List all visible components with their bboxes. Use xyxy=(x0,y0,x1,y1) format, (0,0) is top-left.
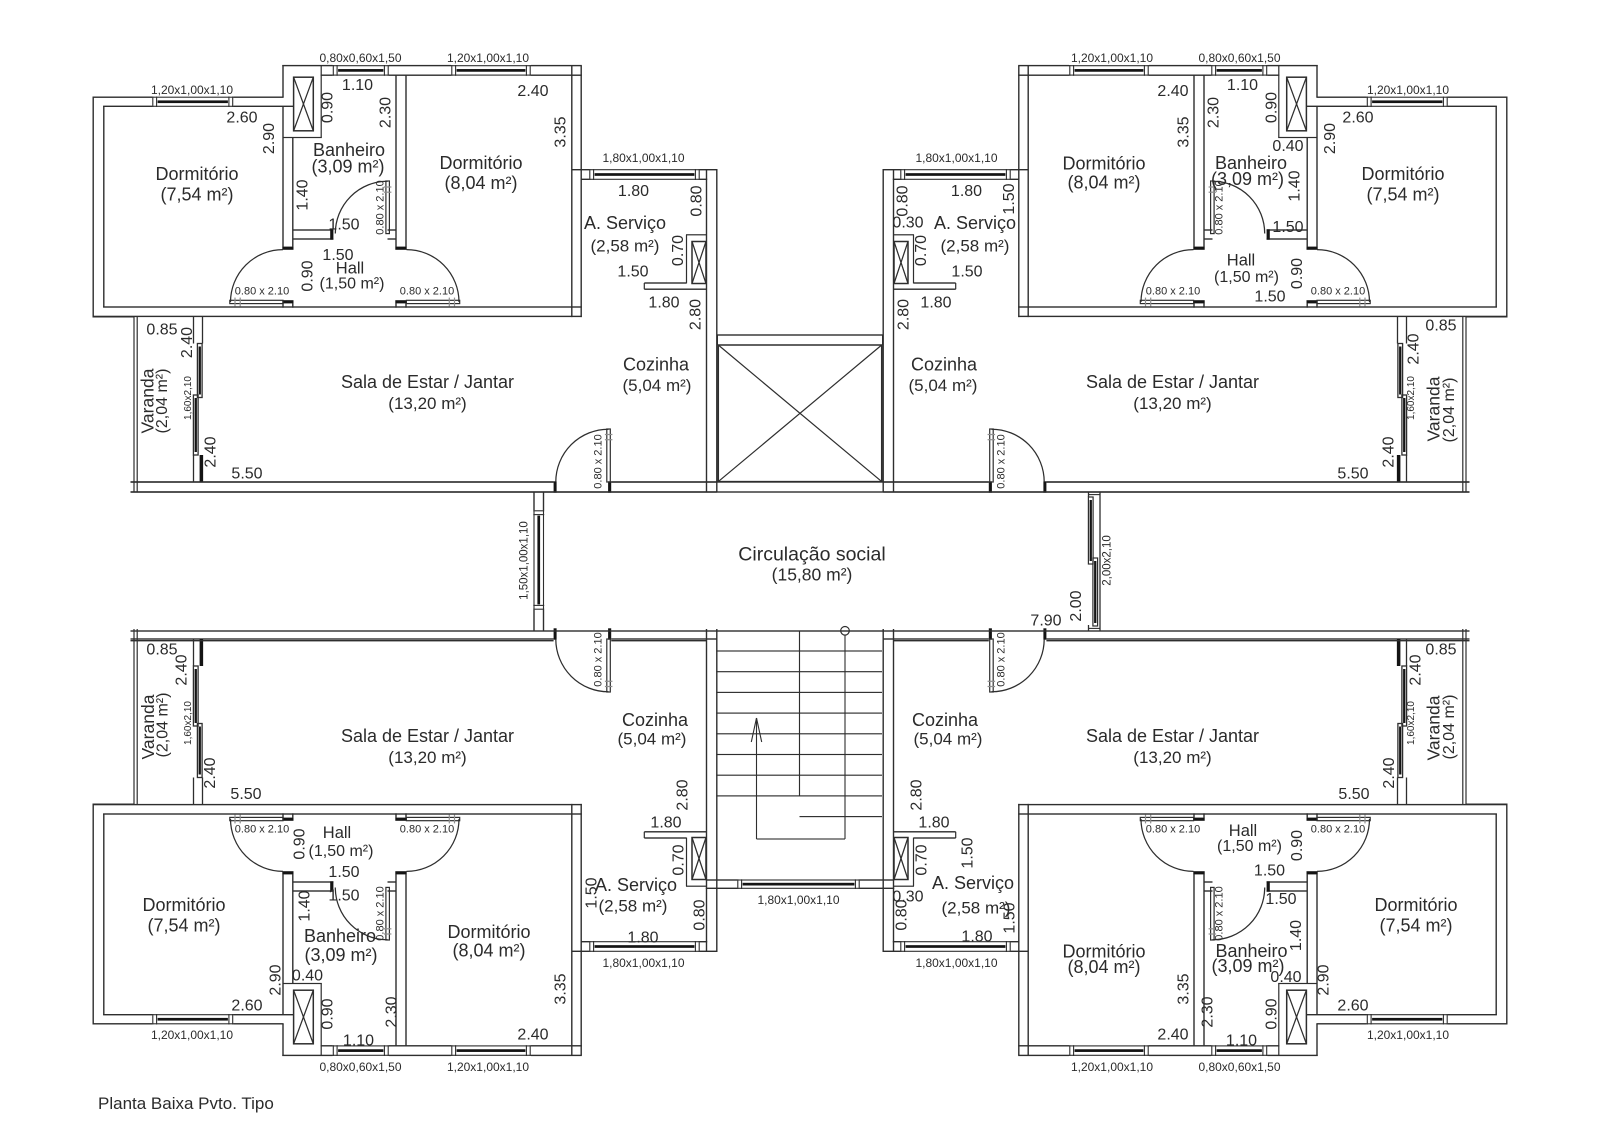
svg-text:0,80x0,60x1,50: 0,80x0,60x1,50 xyxy=(1198,51,1280,65)
svg-text:0.40: 0.40 xyxy=(292,968,323,985)
svg-text:2.90: 2.90 xyxy=(1316,964,1333,995)
svg-text:2.40: 2.40 xyxy=(1157,83,1188,100)
svg-text:1,80x1,00x1,10: 1,80x1,00x1,10 xyxy=(757,893,839,907)
svg-text:1.40: 1.40 xyxy=(1287,170,1304,201)
svg-text:1.50: 1.50 xyxy=(328,888,359,905)
svg-text:1.50: 1.50 xyxy=(322,247,353,264)
svg-text:1,60x2,10: 1,60x2,10 xyxy=(183,376,194,420)
svg-text:0.30: 0.30 xyxy=(892,889,923,906)
svg-text:Hall: Hall xyxy=(1227,252,1255,270)
svg-text:(7,54 m²): (7,54 m²) xyxy=(160,185,233,205)
svg-text:2.40: 2.40 xyxy=(1381,436,1398,467)
svg-text:2.00: 2.00 xyxy=(1068,590,1085,621)
svg-text:(5,04 m²): (5,04 m²) xyxy=(909,376,978,395)
svg-text:7.90: 7.90 xyxy=(1030,613,1061,630)
svg-text:1,60x2,10: 1,60x2,10 xyxy=(1406,701,1417,745)
svg-text:2.40: 2.40 xyxy=(1381,757,1398,788)
svg-text:Dormitório: Dormitório xyxy=(447,922,530,942)
svg-text:Dormitório: Dormitório xyxy=(1361,164,1444,184)
svg-text:1,20x1,00x1,10: 1,20x1,00x1,10 xyxy=(1071,51,1153,65)
svg-text:Cozinha: Cozinha xyxy=(623,355,690,375)
svg-text:3.35: 3.35 xyxy=(553,116,570,147)
svg-text:(5,04 m²): (5,04 m²) xyxy=(623,376,692,395)
svg-text:2.40: 2.40 xyxy=(202,757,219,788)
svg-text:5.50: 5.50 xyxy=(1337,466,1368,483)
svg-text:1,20x1,00x1,10: 1,20x1,00x1,10 xyxy=(1071,1060,1153,1074)
svg-text:2.90: 2.90 xyxy=(1322,123,1339,154)
svg-text:1.50: 1.50 xyxy=(584,877,601,908)
svg-text:(13,20 m²): (13,20 m²) xyxy=(1133,394,1211,413)
svg-text:(5,04 m²): (5,04 m²) xyxy=(618,730,687,749)
svg-text:1.50: 1.50 xyxy=(1002,902,1019,933)
svg-text:Hall: Hall xyxy=(323,824,351,842)
svg-text:0.80 x 2.10: 0.80 x 2.10 xyxy=(235,823,289,835)
svg-text:A. Serviço: A. Serviço xyxy=(934,213,1016,233)
svg-text:(13,20 m²): (13,20 m²) xyxy=(388,394,466,413)
svg-text:Dormitório: Dormitório xyxy=(439,153,522,173)
svg-text:(2,58 m²): (2,58 m²) xyxy=(591,237,660,256)
svg-text:0.30: 0.30 xyxy=(892,215,923,232)
svg-text:Sala de Estar / Jantar: Sala de Estar / Jantar xyxy=(1086,372,1259,392)
svg-text:1.50: 1.50 xyxy=(951,264,982,281)
svg-text:(7,54 m²): (7,54 m²) xyxy=(1379,916,1452,936)
svg-text:(8,04 m²): (8,04 m²) xyxy=(452,941,525,961)
svg-text:1.40: 1.40 xyxy=(295,179,312,210)
svg-text:(3,09 m²): (3,09 m²) xyxy=(304,945,377,965)
svg-text:3.35: 3.35 xyxy=(1176,116,1193,147)
svg-text:0.70: 0.70 xyxy=(671,844,688,875)
svg-text:Dormitório: Dormitório xyxy=(142,895,225,915)
svg-text:0.80: 0.80 xyxy=(895,185,912,216)
svg-text:5.50: 5.50 xyxy=(1338,786,1369,803)
svg-text:1.80: 1.80 xyxy=(650,815,681,832)
svg-text:0.80 x 2.10: 0.80 x 2.10 xyxy=(593,632,605,686)
svg-text:(8,04 m²): (8,04 m²) xyxy=(1067,173,1140,193)
svg-text:Sala de Estar / Jantar: Sala de Estar / Jantar xyxy=(341,372,514,392)
svg-text:1.50: 1.50 xyxy=(1265,891,1296,908)
svg-text:1.80: 1.80 xyxy=(648,295,679,312)
svg-text:1.10: 1.10 xyxy=(1226,1033,1257,1050)
svg-text:(1,50 m²): (1,50 m²) xyxy=(320,276,385,293)
svg-text:1,80x1,00x1,10: 1,80x1,00x1,10 xyxy=(602,956,684,970)
svg-text:3.35: 3.35 xyxy=(1176,973,1193,1004)
svg-text:2.40: 2.40 xyxy=(1157,1027,1188,1044)
svg-text:0.80 x 2.10: 0.80 x 2.10 xyxy=(996,632,1008,686)
svg-text:2.60: 2.60 xyxy=(1342,110,1373,127)
svg-text:(2,04 m²): (2,04 m²) xyxy=(154,369,171,434)
svg-text:1,60x2,10: 1,60x2,10 xyxy=(183,701,194,745)
svg-text:2.90: 2.90 xyxy=(268,964,285,995)
svg-text:1.80: 1.80 xyxy=(920,295,951,312)
svg-text:(7,54 m²): (7,54 m²) xyxy=(147,916,220,936)
svg-text:2.30: 2.30 xyxy=(1200,996,1217,1027)
svg-text:2.40: 2.40 xyxy=(517,83,548,100)
svg-text:Dormitório: Dormitório xyxy=(1062,154,1145,174)
svg-text:0.80 x 2.10: 0.80 x 2.10 xyxy=(1311,823,1365,835)
svg-text:2.30: 2.30 xyxy=(1206,97,1223,128)
svg-text:1.80: 1.80 xyxy=(961,929,992,946)
svg-text:1.10: 1.10 xyxy=(343,1033,374,1050)
svg-text:1.10: 1.10 xyxy=(342,77,373,94)
svg-text:0.80: 0.80 xyxy=(692,899,709,930)
svg-text:0.85: 0.85 xyxy=(146,322,177,339)
svg-text:(13,20 m²): (13,20 m²) xyxy=(388,748,466,767)
svg-text:0.90: 0.90 xyxy=(1264,92,1281,123)
svg-text:1,20x1,00x1,10: 1,20x1,00x1,10 xyxy=(447,1060,529,1074)
svg-text:Cozinha: Cozinha xyxy=(622,710,689,730)
svg-text:A. Serviço: A. Serviço xyxy=(584,213,666,233)
svg-text:0.90: 0.90 xyxy=(300,260,317,291)
svg-text:1,50x1,00x1,10: 1,50x1,00x1,10 xyxy=(519,521,531,600)
svg-text:0.80 x 2.10: 0.80 x 2.10 xyxy=(1146,823,1200,835)
svg-text:5.50: 5.50 xyxy=(230,786,261,803)
svg-text:1,20x1,00x1,10: 1,20x1,00x1,10 xyxy=(151,83,233,97)
svg-text:(2,04 m²): (2,04 m²) xyxy=(1441,378,1458,443)
svg-text:Planta Baixa Pvto. Tipo: Planta Baixa Pvto. Tipo xyxy=(98,1094,274,1113)
svg-text:0.90: 0.90 xyxy=(1289,258,1306,289)
svg-text:0.80: 0.80 xyxy=(689,185,706,216)
svg-text:Circulação social: Circulação social xyxy=(738,544,885,566)
svg-text:0.85: 0.85 xyxy=(1425,642,1456,659)
svg-text:0.80 x 2.10: 0.80 x 2.10 xyxy=(1214,886,1226,940)
svg-text:0,80x0,60x1,50: 0,80x0,60x1,50 xyxy=(319,51,401,65)
svg-text:1.80: 1.80 xyxy=(918,815,949,832)
svg-text:1.50: 1.50 xyxy=(328,217,359,234)
svg-text:2,00x2,10: 2,00x2,10 xyxy=(1102,535,1114,586)
svg-text:1,80x1,00x1,10: 1,80x1,00x1,10 xyxy=(915,956,997,970)
svg-text:1.50: 1.50 xyxy=(1001,183,1018,214)
svg-text:(2,58 m²): (2,58 m²) xyxy=(942,899,1011,918)
svg-text:0.80 x 2.10: 0.80 x 2.10 xyxy=(593,434,605,488)
svg-text:1,20x1,00x1,10: 1,20x1,00x1,10 xyxy=(151,1028,233,1042)
svg-text:2.30: 2.30 xyxy=(384,996,401,1027)
svg-text:2.40: 2.40 xyxy=(203,436,220,467)
svg-text:5.50: 5.50 xyxy=(231,466,262,483)
svg-text:1.50: 1.50 xyxy=(960,837,977,868)
svg-text:1,60x2,10: 1,60x2,10 xyxy=(1406,376,1417,420)
svg-text:2.40: 2.40 xyxy=(1408,654,1425,685)
svg-text:0.90: 0.90 xyxy=(320,998,337,1029)
svg-text:1,20x1,00x1,10: 1,20x1,00x1,10 xyxy=(1367,1028,1449,1042)
svg-text:1.80: 1.80 xyxy=(627,930,658,947)
svg-text:(5,04 m²): (5,04 m²) xyxy=(914,730,983,749)
svg-text:(3,09 m²): (3,09 m²) xyxy=(1211,169,1284,189)
svg-text:1.50: 1.50 xyxy=(617,264,648,281)
svg-text:Cozinha: Cozinha xyxy=(912,710,979,730)
svg-text:1.50: 1.50 xyxy=(328,864,359,881)
svg-text:0.90: 0.90 xyxy=(1289,830,1306,861)
svg-text:(2,04 m²): (2,04 m²) xyxy=(155,693,172,758)
svg-text:0.80 x 2.10: 0.80 x 2.10 xyxy=(235,286,289,298)
svg-text:2.90: 2.90 xyxy=(261,123,278,154)
svg-text:(7,54 m²): (7,54 m²) xyxy=(1366,185,1439,205)
svg-text:2.40: 2.40 xyxy=(179,327,196,358)
svg-text:(1,50 m²): (1,50 m²) xyxy=(1214,269,1279,286)
svg-text:2.60: 2.60 xyxy=(1337,998,1368,1015)
svg-text:0.80 x 2.10: 0.80 x 2.10 xyxy=(996,434,1008,488)
svg-text:1,20x1,00x1,10: 1,20x1,00x1,10 xyxy=(447,51,529,65)
svg-text:2.40: 2.40 xyxy=(174,654,191,685)
svg-text:1.10: 1.10 xyxy=(1227,77,1258,94)
svg-text:2.40: 2.40 xyxy=(1406,333,1423,364)
svg-text:Dormitório: Dormitório xyxy=(1374,895,1457,915)
svg-text:(1,50 m²): (1,50 m²) xyxy=(309,843,374,860)
svg-text:2.60: 2.60 xyxy=(226,110,257,127)
svg-text:(2,04 m²): (2,04 m²) xyxy=(1441,695,1458,760)
svg-text:1.40: 1.40 xyxy=(297,890,314,921)
svg-text:0.90: 0.90 xyxy=(320,92,337,123)
svg-text:2.80: 2.80 xyxy=(675,779,692,810)
svg-text:(2,58 m²): (2,58 m²) xyxy=(941,237,1010,256)
svg-text:1.40: 1.40 xyxy=(1288,920,1305,951)
svg-text:(3,09 m²): (3,09 m²) xyxy=(311,157,384,177)
svg-text:0.40: 0.40 xyxy=(1272,138,1303,155)
svg-text:0.40: 0.40 xyxy=(1270,969,1301,986)
svg-text:(1,50 m²): (1,50 m²) xyxy=(1217,838,1282,855)
svg-text:(15,80 m²): (15,80 m²) xyxy=(772,565,853,585)
svg-text:2.80: 2.80 xyxy=(896,299,913,330)
svg-text:(8,04 m²): (8,04 m²) xyxy=(444,173,517,193)
svg-text:0.90: 0.90 xyxy=(292,828,309,859)
svg-text:0.70: 0.70 xyxy=(914,844,931,875)
svg-text:(13,20 m²): (13,20 m²) xyxy=(1133,748,1211,767)
svg-text:0.80 x 2.10: 0.80 x 2.10 xyxy=(1146,286,1200,298)
svg-text:0,80x0,60x1,50: 0,80x0,60x1,50 xyxy=(319,1060,401,1074)
svg-text:0.80 x 2.10: 0.80 x 2.10 xyxy=(375,180,387,234)
svg-text:0.80 x 2.10: 0.80 x 2.10 xyxy=(375,886,387,940)
svg-text:0,80x0,60x1,50: 0,80x0,60x1,50 xyxy=(1198,1060,1280,1074)
svg-text:Cozinha: Cozinha xyxy=(911,355,978,375)
svg-text:1,20x1,00x1,10: 1,20x1,00x1,10 xyxy=(1367,83,1449,97)
svg-text:Banheiro: Banheiro xyxy=(304,926,376,946)
svg-text:1.50: 1.50 xyxy=(1254,289,1285,306)
svg-text:1,80x1,00x1,10: 1,80x1,00x1,10 xyxy=(602,151,684,165)
svg-text:0.70: 0.70 xyxy=(670,235,687,266)
svg-text:2.80: 2.80 xyxy=(688,299,705,330)
svg-text:A. Serviço: A. Serviço xyxy=(595,875,677,895)
svg-text:1.80: 1.80 xyxy=(618,183,649,200)
svg-text:2.30: 2.30 xyxy=(377,97,394,128)
svg-text:Sala de Estar / Jantar: Sala de Estar / Jantar xyxy=(1086,726,1259,746)
svg-text:1,80x1,00x1,10: 1,80x1,00x1,10 xyxy=(915,151,997,165)
svg-text:1.50: 1.50 xyxy=(1272,219,1303,236)
svg-text:0.80 x 2.10: 0.80 x 2.10 xyxy=(1311,286,1365,298)
svg-text:A. Serviço: A. Serviço xyxy=(932,873,1014,893)
svg-text:Sala de Estar / Jantar: Sala de Estar / Jantar xyxy=(341,726,514,746)
svg-text:2.60: 2.60 xyxy=(231,998,262,1015)
svg-text:3.35: 3.35 xyxy=(553,973,570,1004)
svg-text:0.80 x 2.10: 0.80 x 2.10 xyxy=(400,823,454,835)
svg-text:(8,04 m²): (8,04 m²) xyxy=(1067,957,1140,977)
svg-text:0.70: 0.70 xyxy=(913,235,930,266)
svg-text:0.80 x 2.10: 0.80 x 2.10 xyxy=(400,286,454,298)
svg-text:2.40: 2.40 xyxy=(517,1027,548,1044)
svg-text:Dormitório: Dormitório xyxy=(155,164,238,184)
svg-text:2.80: 2.80 xyxy=(909,779,926,810)
svg-text:1.80: 1.80 xyxy=(951,183,982,200)
svg-text:(2,58 m²): (2,58 m²) xyxy=(599,897,668,916)
svg-text:0.85: 0.85 xyxy=(1425,318,1456,335)
svg-text:0.90: 0.90 xyxy=(1264,998,1281,1029)
svg-text:1.50: 1.50 xyxy=(1254,863,1285,880)
